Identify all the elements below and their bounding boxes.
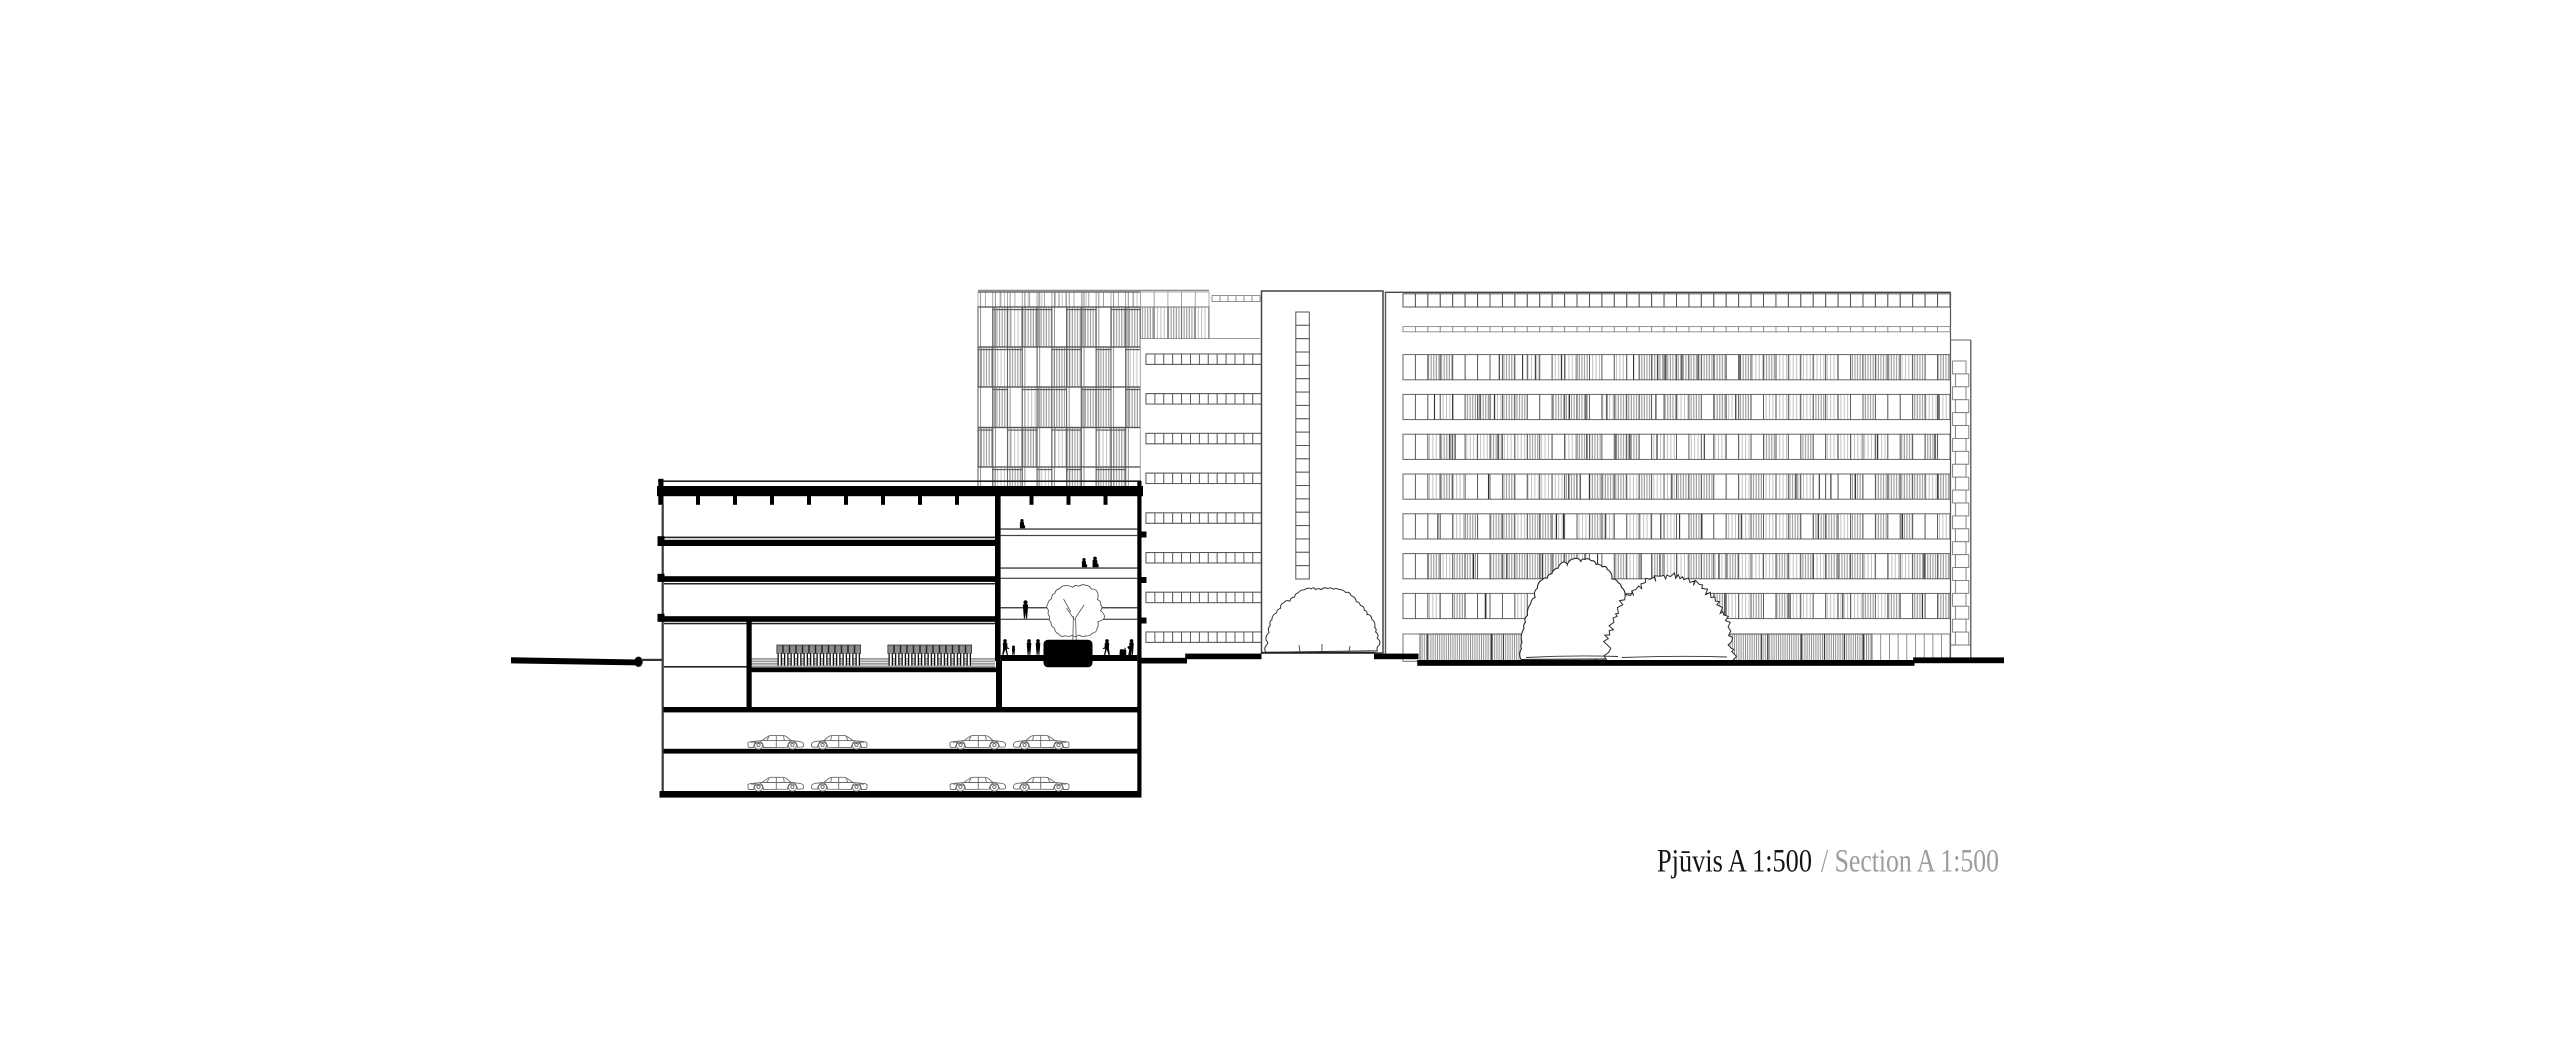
svg-text:/ Section A 1:500: / Section A 1:500: [1821, 844, 1999, 880]
svg-text:Pjūvis A 1:500: Pjūvis A 1:500: [1657, 844, 1812, 880]
